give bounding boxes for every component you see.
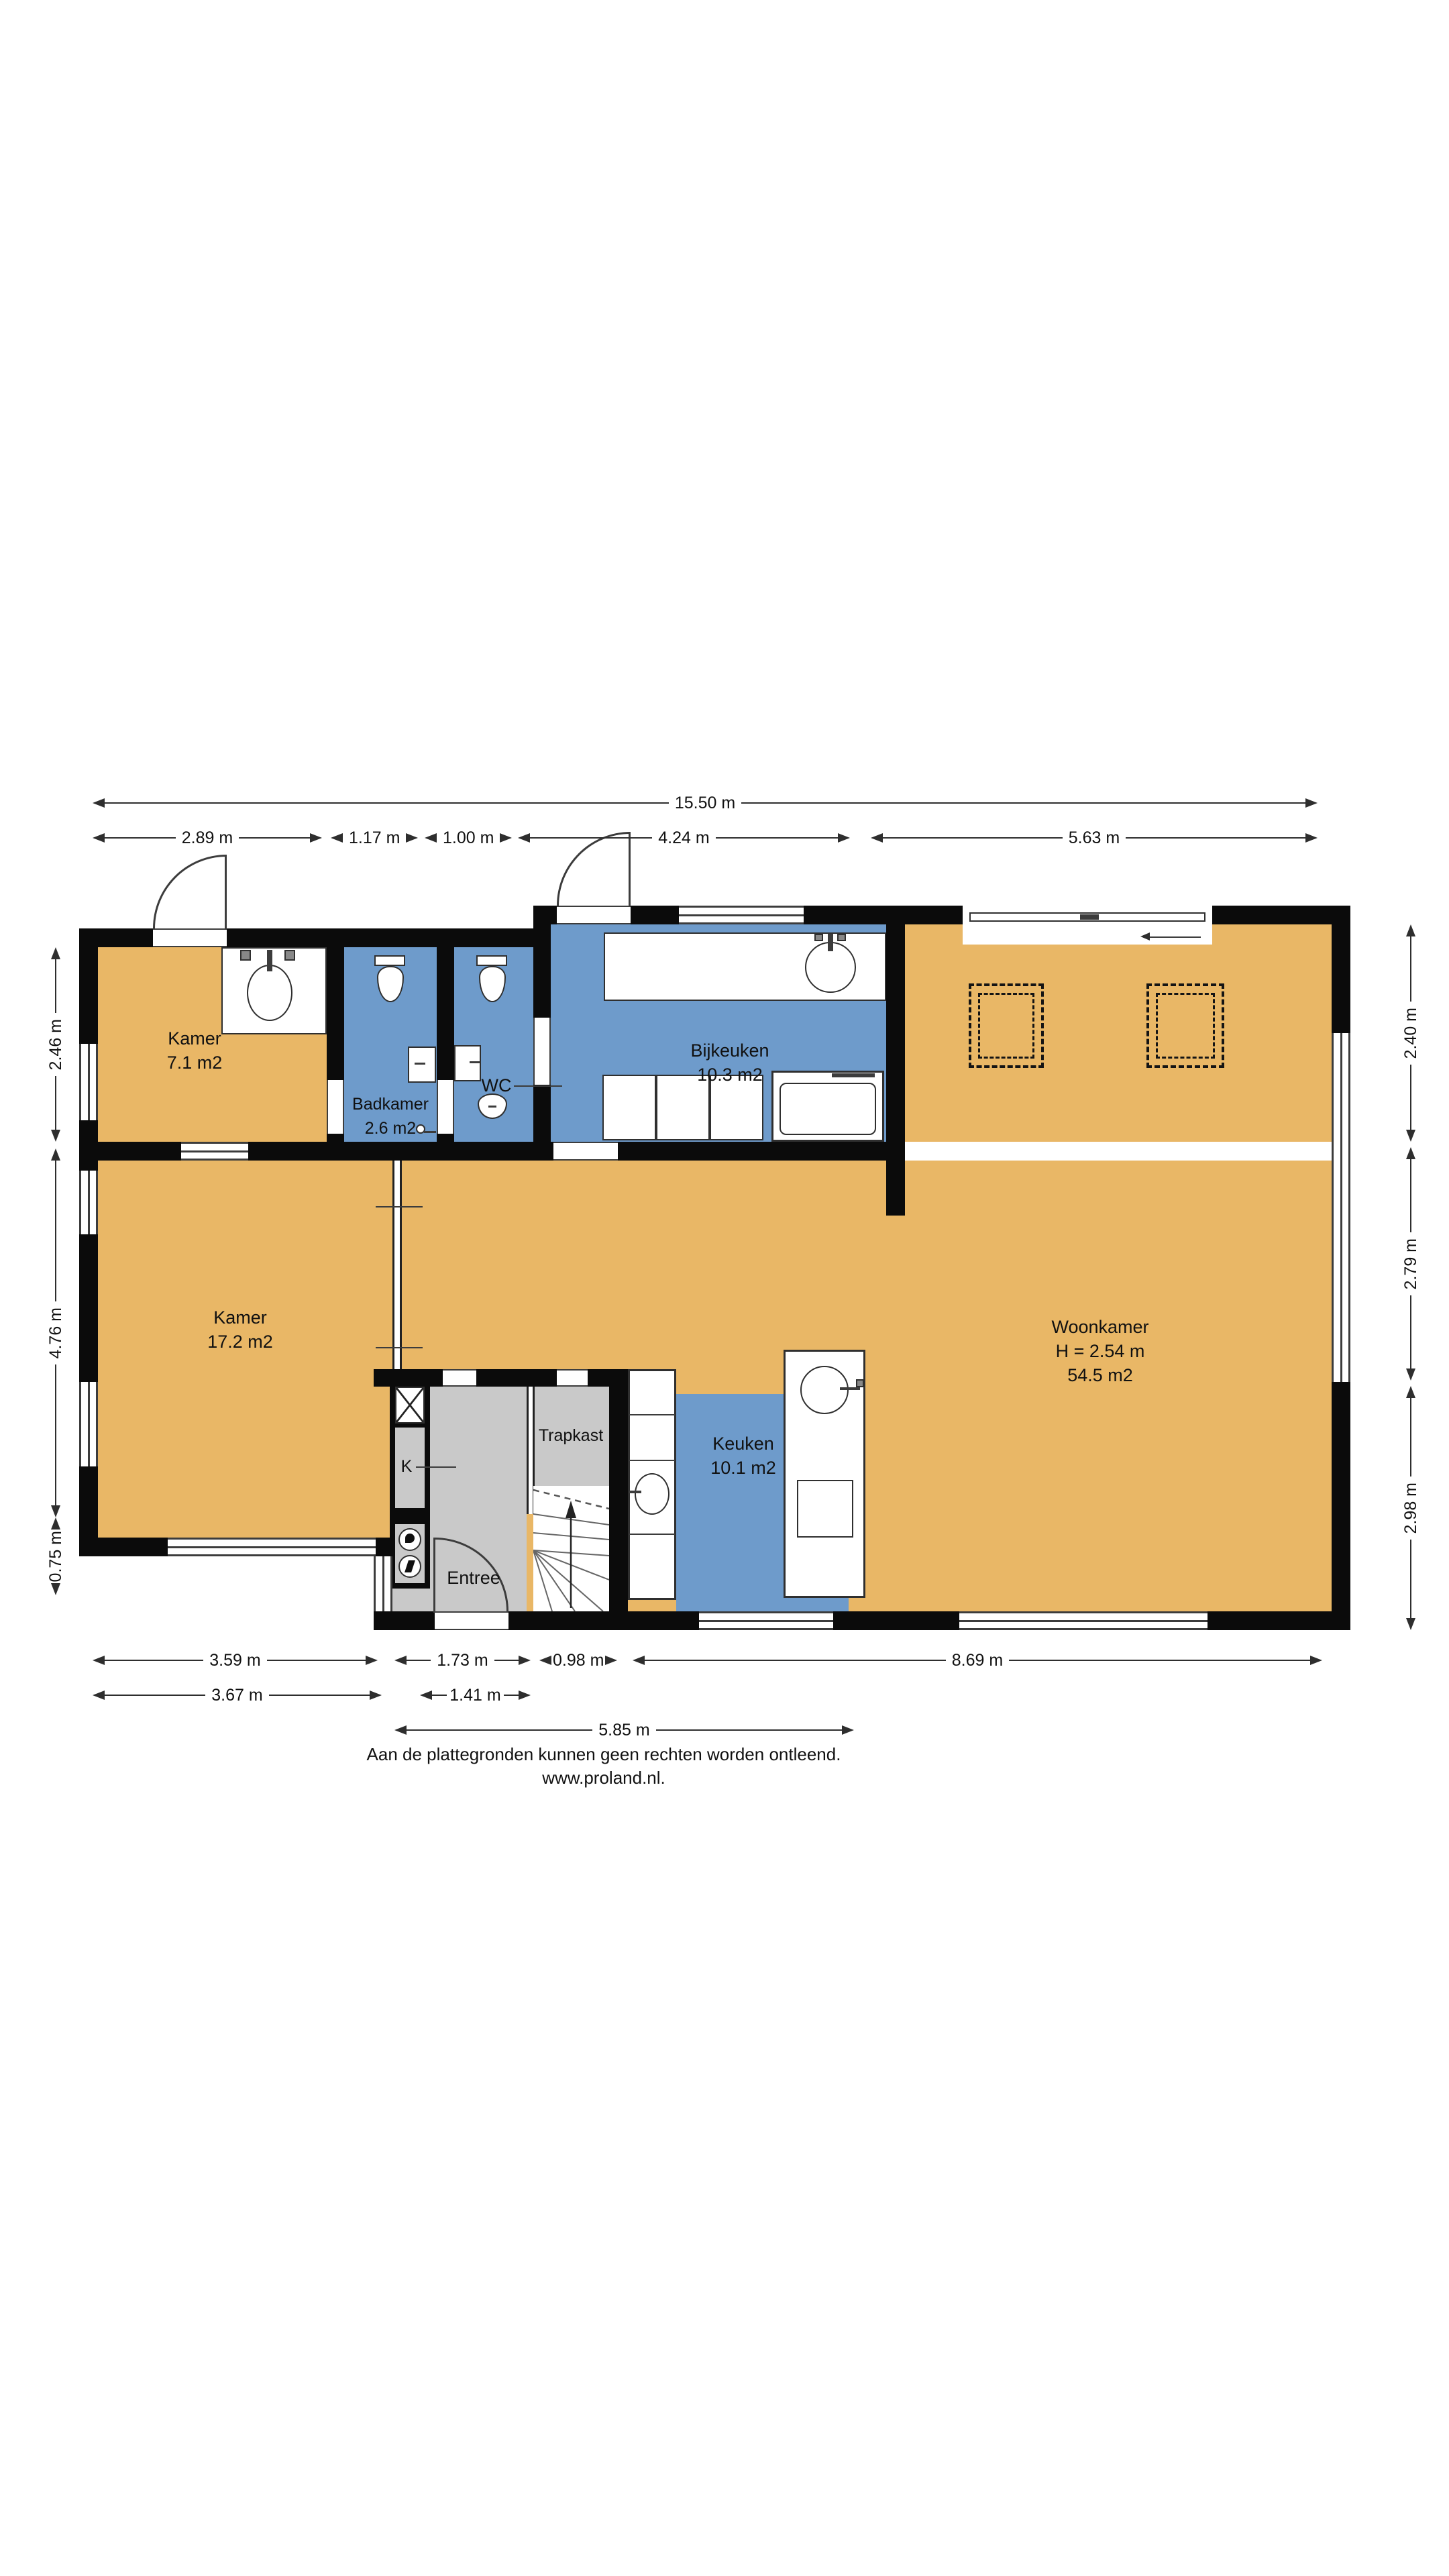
label-bijkeuken: Bijkeuken 10.3 m2 [690,1038,769,1087]
label-kast-k: K [401,1454,413,1479]
meter-1-dot-icon [405,1534,415,1543]
room-name: Badkamer [352,1092,429,1116]
dim-top-2: 1.17 m [331,830,416,845]
door-opening-bijkeuken-south [553,1142,618,1161]
vanity-faucet-icon [267,950,272,971]
shaft-cross-icon [396,1388,423,1422]
opening-mid-wall-west [181,1142,248,1161]
bijkeuken-faucet-handle-left-icon [814,934,823,941]
dim-right-3: 2.98 m [1403,1386,1418,1630]
floorplan-canvas: Kamer 7.1 m2 Badkamer 2.6 m2 WC Bijkeuke… [0,0,1449,2576]
dim-bottom2-2: 1.41 m [420,1688,531,1703]
island-faucet-icon [840,1387,860,1390]
room-entree-sill [392,1589,430,1611]
vanity-handle-left-icon [240,950,251,961]
badkamer-toilet-tank-icon [374,955,405,966]
partition-opening-tick-1 [376,1206,423,1207]
label-kamer-groot: Kamer 17.2 m2 [207,1305,273,1354]
sliding-door-arrow-line [1148,936,1201,938]
dim-bottom-3: 0.98 m [539,1653,616,1668]
room-area: 7.1 m2 [167,1051,223,1075]
skylight-1-icon [969,983,1044,1068]
room-height: H = 2.54 m [1051,1339,1148,1363]
label-badkamer: Badkamer 2.6 m2 [352,1092,429,1140]
label-keuken: Keuken 10.1 m2 [710,1432,776,1480]
dim-bottom2-1: 3.67 m [93,1688,382,1703]
partition-kamer-groot-east [392,1161,402,1369]
dim-bottom3: 5.85 m [394,1723,854,1737]
hall-sink-icon [635,1473,669,1515]
window-west-kamer-klein [79,1044,98,1120]
island-faucet-handle-icon [856,1379,864,1387]
wall-stairs-east [609,1369,628,1630]
hall-cabinet-div-3 [629,1534,675,1535]
dim-top-5: 5.63 m [871,830,1318,845]
door-wc-west [437,1080,454,1134]
label-woonkamer: Woonkamer H = 2.54 m 54.5 m2 [1051,1315,1148,1387]
vanity-handle-right-icon [284,950,295,961]
window-west-kamer-groot-1 [79,1171,98,1234]
door-tick-entree [443,1369,476,1387]
label-entree: Entree [447,1566,500,1590]
window-south-kamer-groot [168,1538,376,1556]
skylight-2-icon [1146,983,1224,1068]
wall-south-block [392,1611,631,1630]
dim-left-2: 4.76 m [48,1148,63,1517]
room-area: 17.2 m2 [207,1330,273,1354]
room-name: Entree [447,1566,500,1590]
hall-cabinet-div-2 [629,1460,675,1461]
washer-drum-icon [780,1083,876,1135]
wall-top-jog [533,906,551,947]
room-name: Kamer [207,1305,273,1330]
door-arc-kamer-klein [153,855,227,928]
sliding-door-woonkamer [963,906,1212,945]
bijkeuken-faucet-handle-right-icon [837,934,846,941]
room-area: 10.1 m2 [710,1456,776,1480]
dim-top-1: 2.89 m [93,830,322,845]
kast-k-tick [416,1466,456,1468]
label-kamer-klein: Kamer 7.1 m2 [167,1026,223,1075]
dim-bottom-2: 1.73 m [394,1653,531,1668]
badkamer-sink-icon [408,1046,436,1083]
wc-sink-icon [454,1045,481,1081]
room-area: 54.5 m2 [1051,1363,1148,1387]
badkamer-sink-faucet-icon [415,1063,425,1065]
room-name: Keuken [710,1432,776,1456]
room-name: K [401,1454,413,1479]
door-badkamer [327,1080,344,1134]
hall-sink-faucet-icon [629,1491,641,1493]
island-sink-icon [800,1366,849,1414]
dim-right-2: 2.79 m [1403,1147,1418,1381]
window-bijkeuken-north [679,906,804,924]
door-opening-bijkeuken [557,906,631,924]
dim-bottom-4: 8.69 m [633,1653,1322,1668]
bijkeuken-cabinet-1 [602,1075,656,1140]
cooktop-icon [797,1480,853,1538]
dim-bottom-1: 3.59 m [93,1653,378,1668]
dim-top-3: 1.00 m [425,830,509,845]
wall-top-right [551,906,1350,924]
room-area: 2.6 m2 [352,1116,429,1140]
washer-panel-icon [832,1073,875,1077]
hall-cabinet-div-1 [629,1414,675,1415]
bijkeuken-faucet-icon [828,934,833,951]
door-opening-kamer-klein [153,928,227,947]
room-name: Woonkamer [1051,1315,1148,1339]
wc-toilet-tank-icon [476,955,507,966]
footer-disclaimer: Aan de plattegronden kunnen geen rechten… [255,1743,953,1790]
front-door-opening [435,1611,508,1630]
room-name: WC [482,1073,512,1097]
door-tick-trapkast [557,1369,588,1387]
vanity-sink-icon [247,965,292,1021]
window-west-kamer-groot-2 [79,1382,98,1466]
dim-top-total: 15.50 m [93,796,1318,810]
door-wc-east [533,1018,551,1085]
window-south-woonkamer [959,1611,1207,1630]
window-west-entree [374,1556,392,1611]
wc-sink-faucet-icon [470,1061,480,1063]
wc-label-tick [514,1085,562,1087]
wall-top-left [79,928,551,947]
shaft-icon [395,1387,425,1424]
room-name: Kamer [167,1026,223,1051]
sliding-door-panel [1080,914,1099,920]
room-area: 10.3 m2 [690,1063,769,1087]
label-trapkast: Trapkast [539,1424,603,1448]
window-south-keuken [699,1611,833,1630]
room-name: Bijkeuken [690,1038,769,1063]
wc-fontein-tick-icon [488,1106,496,1108]
label-wc: WC [482,1073,512,1097]
sliding-door-arrow-head [1140,932,1150,941]
front-door-leaf [433,1538,435,1613]
wall-bijkeuken-east-stub [886,924,905,1216]
window-east-woonkamer [1332,1033,1350,1382]
website-text: www.proland.nl. [255,1766,953,1790]
dim-left-1: 2.46 m [48,947,63,1142]
dim-top-4: 4.24 m [518,830,850,845]
stairs-icon [533,1486,609,1611]
dim-left-3: 0.75 m [48,1517,63,1575]
disclaimer-text: Aan de plattegronden kunnen geen rechten… [255,1743,953,1766]
stairs [533,1486,609,1611]
door-leaf-kamer-klein [225,855,227,930]
room-name: Trapkast [539,1424,603,1448]
partition-opening-tick-2 [376,1347,423,1348]
floorplan-page: { "rooms": { "kamer_klein": {"name": "Ka… [0,0,1449,2576]
dim-right-1: 2.40 m [1403,924,1418,1142]
